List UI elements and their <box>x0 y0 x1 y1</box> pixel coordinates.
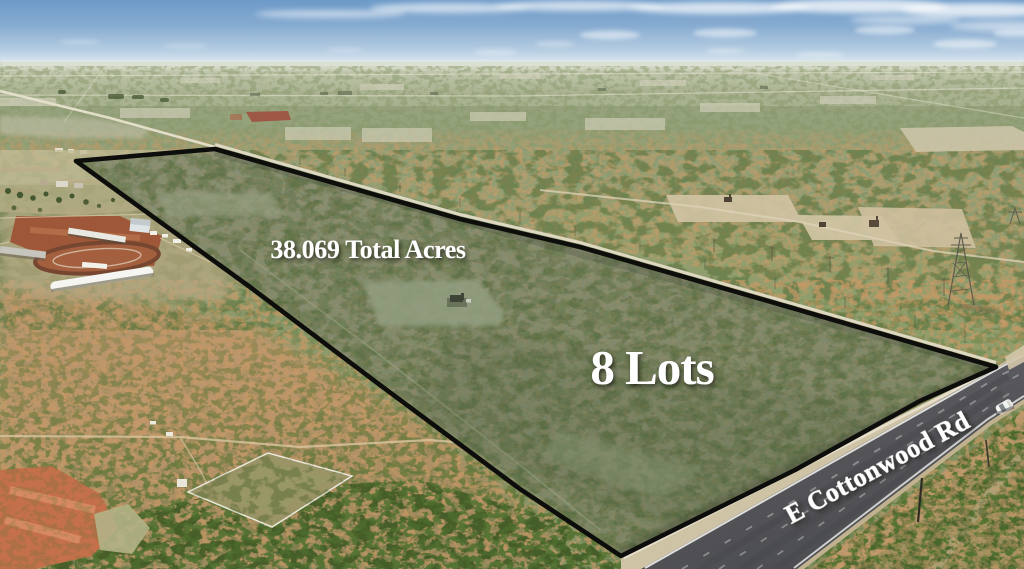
svg-text:38.069 Total Acres: 38.069 Total Acres <box>270 235 466 264</box>
svg-text:8 Lots: 8 Lots <box>590 340 713 395</box>
